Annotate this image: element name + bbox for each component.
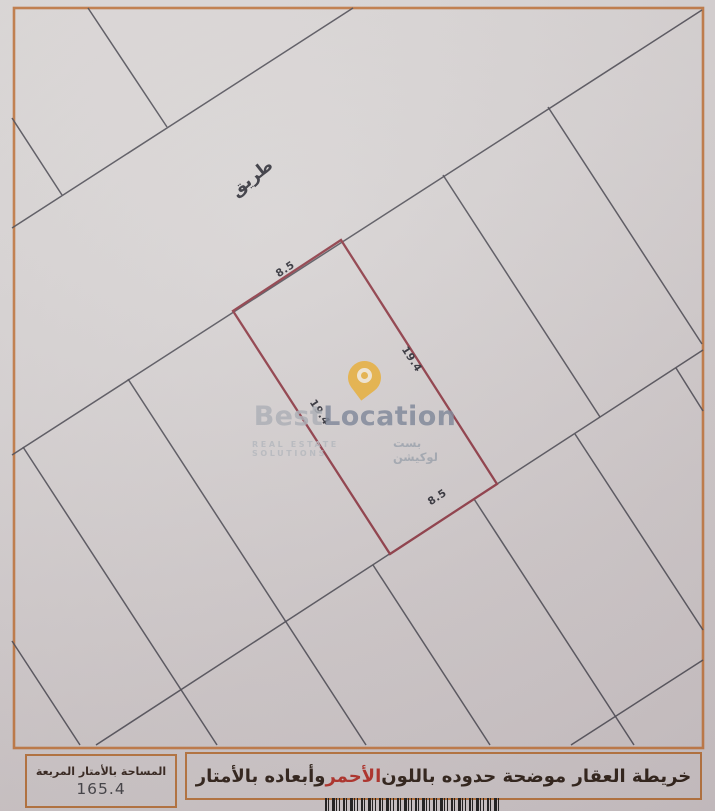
parcel-divider (676, 368, 703, 411)
barcode (325, 798, 501, 811)
parcel-divider (373, 565, 490, 745)
plot-dimension-bottom: 8.5 (426, 487, 449, 508)
area-box: المساحة بالأمتار المربعة 165.4 (25, 754, 177, 808)
parcel-divider (575, 434, 703, 630)
row-boundary-line (571, 660, 703, 745)
note-text-suffix: وأبعاده بالأمتار (196, 766, 326, 787)
note-text-prefix: خريطة العقار موضحة حدوده باللون (381, 766, 691, 787)
watermark-tagline: REAL ESTATE SOLUTIONS بست لوكيشن (252, 436, 458, 464)
scanned-cadastral-map-page: 8.5 19.4 19.4 8.5 طريق BestLocation REAL… (0, 0, 715, 811)
parcel-divider (12, 118, 62, 195)
watermark-brand-best: Best (254, 403, 323, 430)
watermark: BestLocation REAL ESTATE SOLUTIONS بست ل… (240, 358, 470, 454)
road-upper-edge-line (12, 8, 353, 228)
area-box-value: 165.4 (76, 780, 125, 798)
parcel-divider (474, 499, 634, 745)
road-label: طريق (227, 155, 277, 200)
watermark-brand-location: Location (323, 403, 456, 430)
location-pin-dot (361, 372, 368, 379)
note-text-highlight-red: الأحمر (325, 766, 381, 787)
parcel-divider (548, 107, 702, 344)
parcel-divider (23, 447, 217, 745)
parcel-divider (12, 641, 80, 745)
watermark-brand: BestLocation (248, 403, 462, 430)
watermark-tagline-ar: بست لوكيشن (393, 436, 458, 464)
parcel-divider (88, 8, 167, 127)
map-note-box: خريطة العقار موضحة حدوده باللون الأحمر و… (185, 752, 702, 800)
watermark-tagline-en: REAL ESTATE SOLUTIONS (252, 440, 393, 458)
area-box-label: المساحة بالأمتار المربعة (36, 765, 166, 778)
